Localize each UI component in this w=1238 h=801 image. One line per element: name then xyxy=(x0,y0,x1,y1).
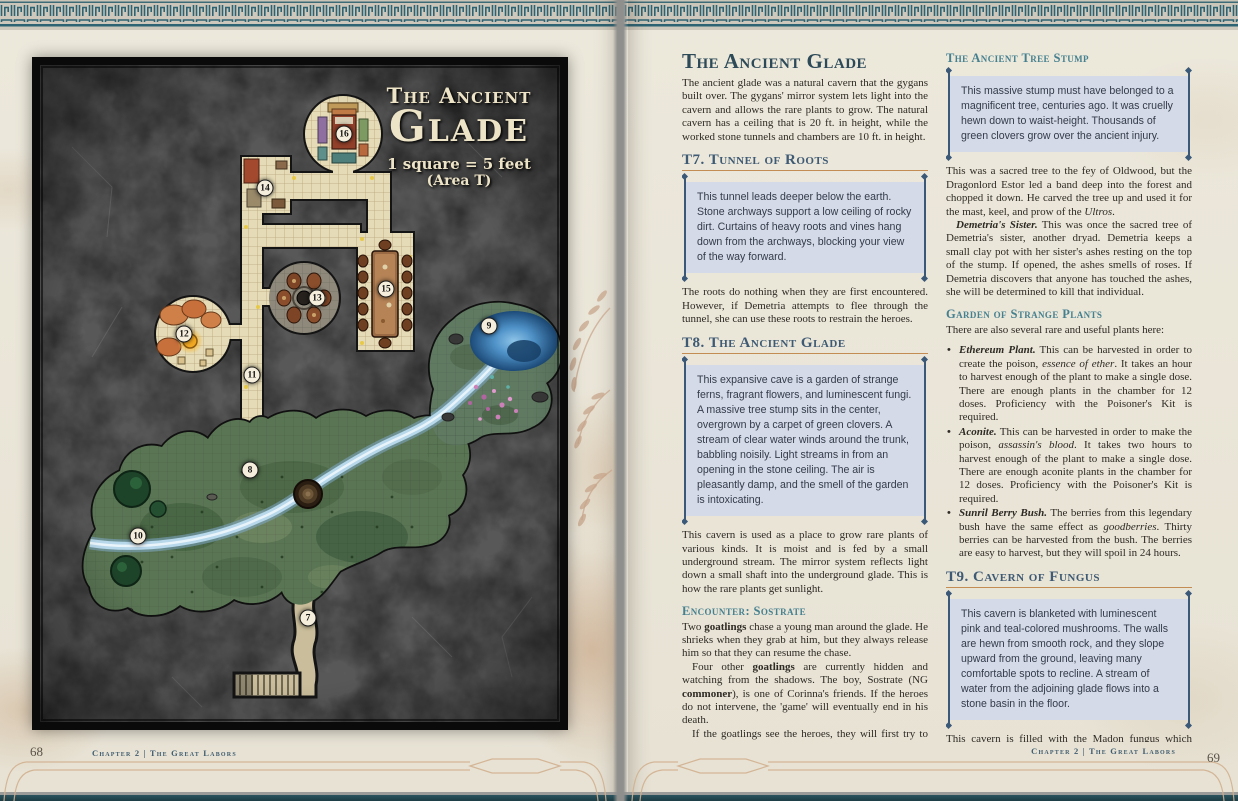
map-marker: 12 xyxy=(176,326,193,343)
corner-flourish-left xyxy=(0,758,610,801)
subsection-heading-stump: The Ancient Tree Stump xyxy=(946,52,1192,65)
garden-intro: There are also several rare and useful p… xyxy=(946,324,1192,337)
readaloud-rule xyxy=(684,177,686,278)
readaloud-box-stump: This massive stump must have belonged to… xyxy=(949,76,1189,152)
page-left: The Ancient Glade 1 square = 5 feet (Are… xyxy=(0,0,618,801)
book-spread: The Ancient Glade 1 square = 5 feet (Are… xyxy=(0,0,1238,801)
t8-followup: This cavern is used as a place to grow r… xyxy=(682,529,928,596)
readaloud-text: This massive stump must have belonged to… xyxy=(961,84,1177,144)
readaloud-box-t7: This tunnel leads deeper below the earth… xyxy=(685,182,925,273)
readaloud-rule xyxy=(924,177,926,278)
page-gutter xyxy=(613,0,628,801)
readaloud-text: This cavern is blanketed with luminescen… xyxy=(961,607,1177,712)
intro-paragraph: The ancient glade was a natural cavern t… xyxy=(682,77,928,144)
readaloud-rule xyxy=(684,360,686,521)
readaloud-rule xyxy=(1188,594,1190,725)
map-marker: 11 xyxy=(244,367,261,384)
readaloud-rule xyxy=(924,360,926,521)
stump-paragraph-1: This was a sacred tree to the fey of Old… xyxy=(946,165,1192,219)
corner-flourish-right xyxy=(628,758,1238,801)
encounter-paragraph-2: Four other goatlings are currently hidde… xyxy=(682,661,928,728)
t9-paragraph-1: This cavern is filled with the Madon fun… xyxy=(946,733,1192,742)
plant-list-item: Ethereum Plant. This can be harvested in… xyxy=(946,344,1192,424)
readaloud-rule xyxy=(1188,71,1190,157)
map-marker: 10 xyxy=(130,528,147,545)
plant-list: Ethereum Plant. This can be harvested in… xyxy=(946,344,1192,561)
page-number-left: 68 xyxy=(30,744,43,760)
column-right: The Ancient Tree Stump This massive stum… xyxy=(946,50,1192,742)
section-heading-t8: T8. The Ancient Glade xyxy=(682,337,928,354)
map-marker: 13 xyxy=(309,290,326,307)
page-number-right: 69 xyxy=(1207,750,1220,766)
map-marker: 14 xyxy=(257,180,274,197)
map-marker: 7 xyxy=(300,610,317,627)
encounter-paragraph-1: Two goatlings chase a young man around t… xyxy=(682,621,928,661)
t7-followup: The roots do nothing when they are first… xyxy=(682,286,928,326)
readaloud-rule xyxy=(948,71,950,157)
plant-list-item: Aconite. This can be harvested in order … xyxy=(946,426,1192,506)
section-heading-t9: T9. Cavern of Fungus xyxy=(946,571,1192,588)
readaloud-box-t8: This expansive cave is a garden of stran… xyxy=(685,365,925,516)
subsection-heading-encounter: Encounter: Sostrate xyxy=(682,605,928,618)
chapter-footer-right: Chapter 2 | The Great Labors xyxy=(1031,746,1176,756)
map-panel: The Ancient Glade 1 square = 5 feet (Are… xyxy=(32,57,568,730)
map-marker: 8 xyxy=(242,462,259,479)
page-right: The Ancient Glade The ancient glade was … xyxy=(628,0,1238,801)
map-markers: 78910111213141516 xyxy=(32,57,568,730)
column-left: The Ancient Glade The ancient glade was … xyxy=(682,50,928,742)
chapter-footer-left: Chapter 2 | The Great Labors xyxy=(92,748,237,758)
encounter-paragraph-3: If the goatlings see the heroes, they wi… xyxy=(682,728,928,742)
readaloud-text: This expansive cave is a garden of stran… xyxy=(697,373,913,508)
section-heading-t7: T7. Tunnel of Roots xyxy=(682,154,928,171)
map-marker: 16 xyxy=(336,126,353,143)
map-marker: 9 xyxy=(481,318,498,335)
article-title: The Ancient Glade xyxy=(682,50,928,72)
plant-list-item: Sunril Berry Bush. The berries from this… xyxy=(946,507,1192,561)
map-marker: 15 xyxy=(378,281,395,298)
readaloud-box-t9: This cavern is blanketed with luminescen… xyxy=(949,599,1189,720)
readaloud-text: This tunnel leads deeper below the earth… xyxy=(697,190,913,265)
stump-paragraph-2: Demetria's Sister. This was once the sac… xyxy=(946,219,1192,299)
readaloud-rule xyxy=(948,594,950,725)
subsection-heading-garden: Garden of Strange Plants xyxy=(946,308,1192,321)
